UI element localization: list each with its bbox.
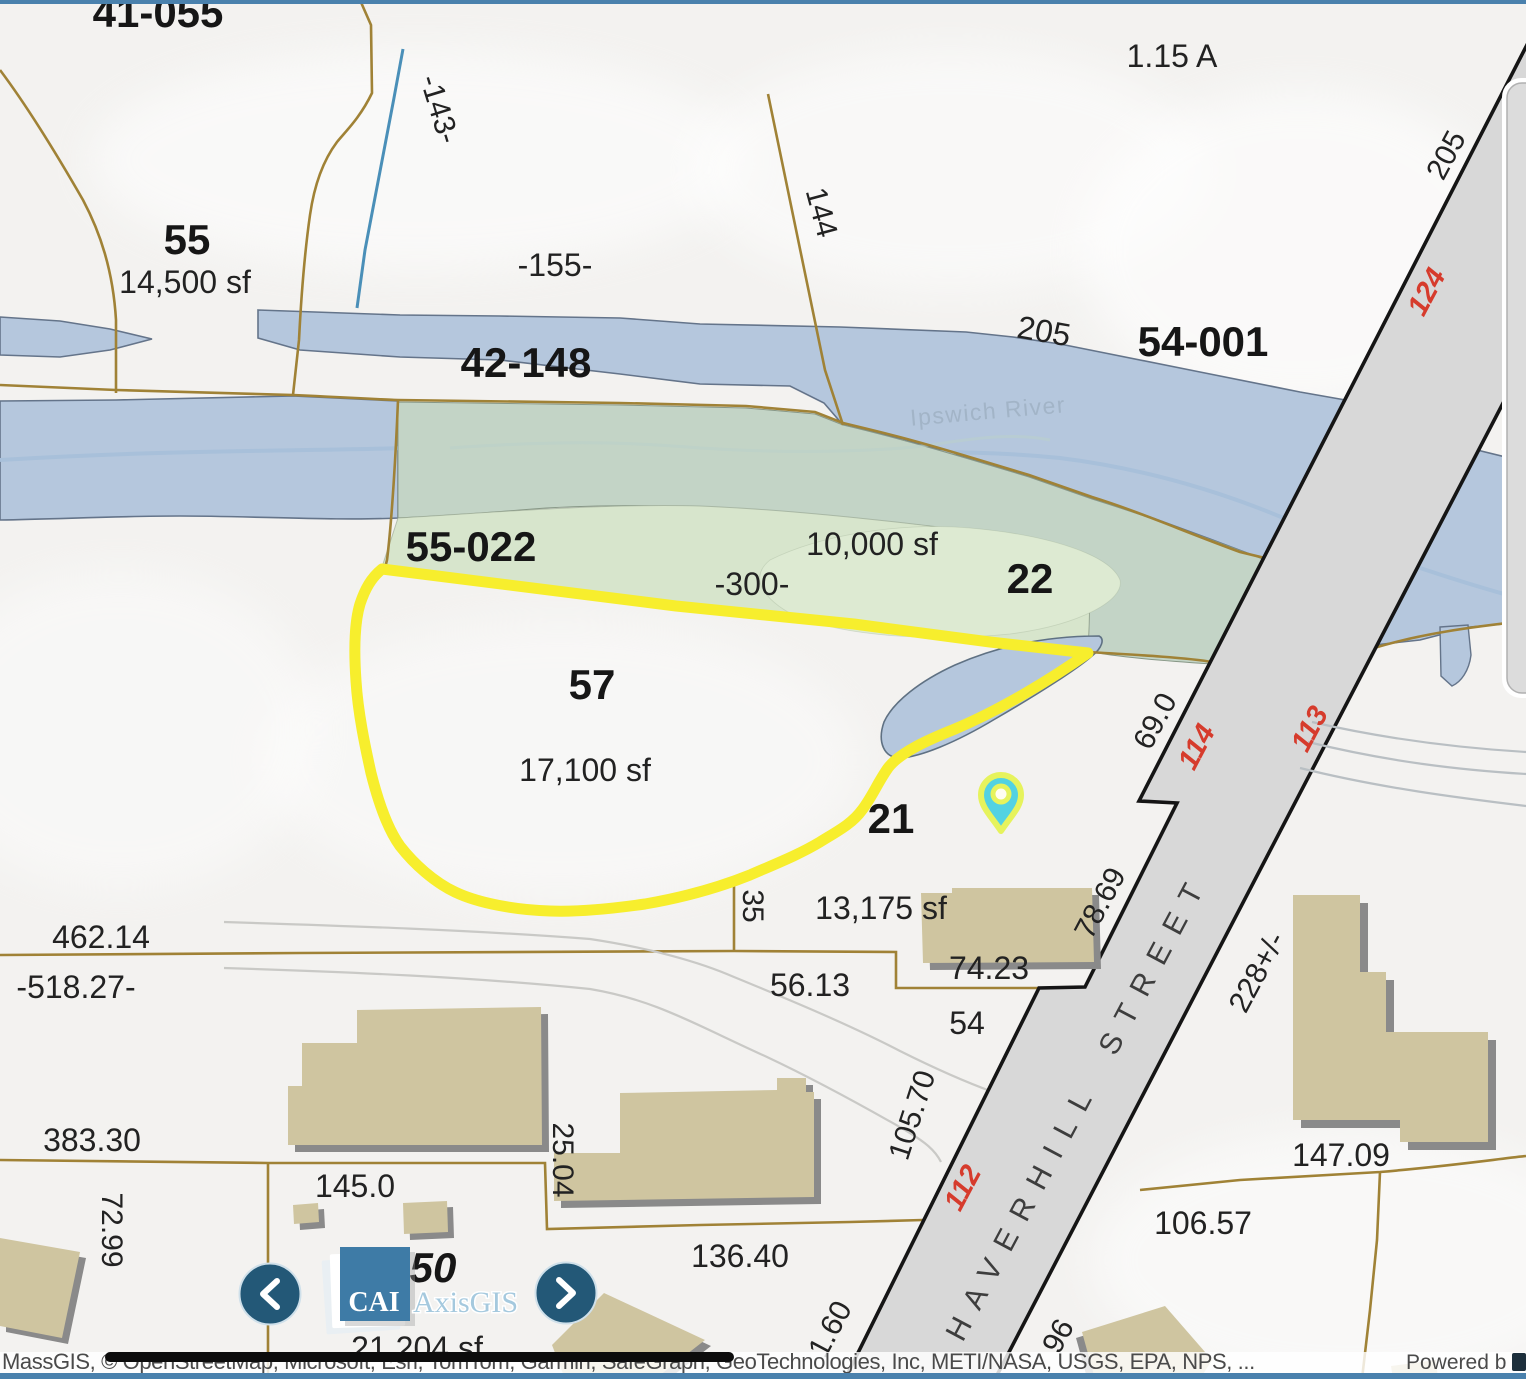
svg-text:41-055: 41-055: [93, 0, 224, 36]
svg-text:CAI: CAI: [348, 1287, 399, 1318]
svg-text:-518.27-: -518.27-: [16, 969, 135, 1005]
svg-text:21: 21: [868, 795, 915, 842]
svg-text:35: 35: [736, 889, 769, 922]
svg-text:-300-: -300-: [715, 566, 790, 602]
svg-text:72.99: 72.99: [95, 1192, 128, 1267]
svg-text:42-148: 42-148: [461, 339, 592, 386]
svg-text:22: 22: [1007, 555, 1054, 602]
svg-text:147.09: 147.09: [1292, 1137, 1390, 1173]
svg-text:462.14: 462.14: [52, 919, 150, 955]
svg-text:AxisGIS: AxisGIS: [413, 1286, 518, 1319]
svg-text:145.0: 145.0: [315, 1168, 395, 1204]
svg-text:54: 54: [949, 1005, 985, 1041]
svg-text:14,500 sf: 14,500 sf: [119, 264, 251, 300]
svg-text:10,000 sf: 10,000 sf: [806, 526, 938, 562]
svg-text:56.13: 56.13: [770, 967, 850, 1003]
svg-text:25.04: 25.04: [546, 1122, 579, 1197]
svg-text:55-022: 55-022: [406, 523, 537, 570]
svg-text:74.23: 74.23: [949, 950, 1029, 986]
svg-text:Powered b: Powered b: [1406, 1351, 1506, 1374]
svg-text:54-001: 54-001: [1138, 318, 1269, 365]
svg-text:13,175 sf: 13,175 sf: [815, 890, 947, 926]
svg-text:50: 50: [410, 1244, 457, 1291]
svg-text:1.15 A: 1.15 A: [1127, 38, 1218, 74]
svg-text:17,100 sf: 17,100 sf: [519, 752, 651, 788]
svg-text:57: 57: [569, 661, 616, 708]
svg-text:-155-: -155-: [518, 247, 593, 283]
svg-text:136.40: 136.40: [691, 1238, 789, 1274]
svg-text:55: 55: [164, 216, 211, 263]
svg-text:106.57: 106.57: [1154, 1205, 1252, 1241]
svg-text:383.30: 383.30: [43, 1122, 141, 1158]
